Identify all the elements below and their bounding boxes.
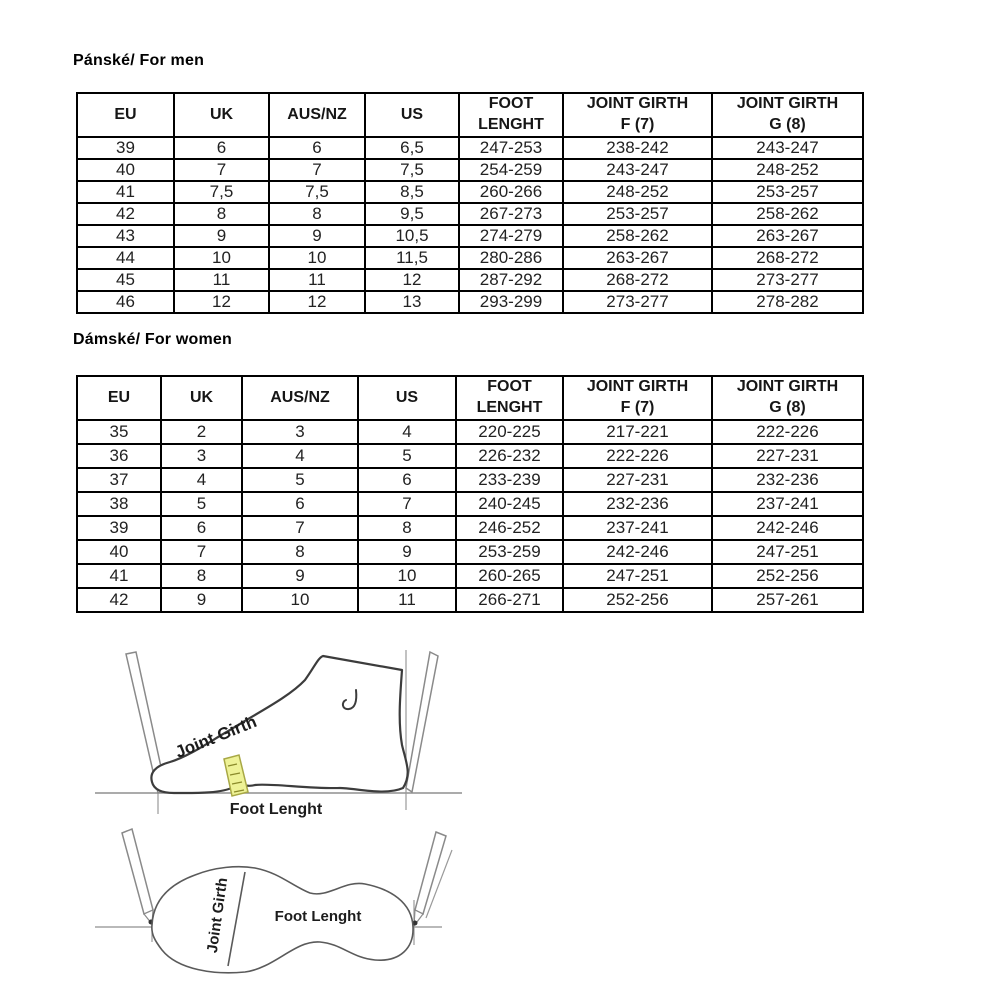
column-header: EU <box>77 376 161 420</box>
table-cell: 222-226 <box>563 444 712 468</box>
table-cell: 253-259 <box>456 540 563 564</box>
table-cell: 266-271 <box>456 588 563 612</box>
table-cell: 9,5 <box>365 203 459 225</box>
table-cell: 2 <box>161 420 242 444</box>
table-cell: 36 <box>77 444 161 468</box>
table-cell: 11 <box>174 269 269 291</box>
table-cell: 247-253 <box>459 137 563 159</box>
column-header: UK <box>161 376 242 420</box>
table-cell: 12 <box>365 269 459 291</box>
men-section-title: Pánské/ For men <box>73 52 204 70</box>
table-cell: 237-241 <box>712 492 863 516</box>
table-row: 44101011,5280-286263-267268-272 <box>77 247 863 269</box>
table-row: 39666,5247-253238-242243-247 <box>77 137 863 159</box>
table-cell: 7 <box>174 159 269 181</box>
table-cell: 237-241 <box>563 516 712 540</box>
table-cell: 8 <box>242 540 358 564</box>
column-header: US <box>358 376 456 420</box>
table-cell: 8 <box>174 203 269 225</box>
table-cell: 7,5 <box>269 181 365 203</box>
men-table-header-row: EUUKAUS/NZUSFOOT LENGHTJOINT GIRTH F (7)… <box>77 93 863 137</box>
column-header: JOINT GIRTH F (7) <box>563 93 712 137</box>
table-cell: 10,5 <box>365 225 459 247</box>
table-row: 37456233-239227-231232-236 <box>77 468 863 492</box>
women-size-table: EUUKAUS/NZUSFOOT LENGHTJOINT GIRTH F (7)… <box>76 375 864 613</box>
table-cell: 42 <box>77 588 161 612</box>
table-row: 42889,5267-273253-257258-262 <box>77 203 863 225</box>
table-cell: 10 <box>174 247 269 269</box>
table-cell: 39 <box>77 516 161 540</box>
table-cell: 37 <box>77 468 161 492</box>
column-header: FOOT LENGHT <box>456 376 563 420</box>
table-cell: 222-226 <box>712 420 863 444</box>
table-row: 39678246-252237-241242-246 <box>77 516 863 540</box>
table-cell: 4 <box>242 444 358 468</box>
table-cell: 6 <box>358 468 456 492</box>
column-header: JOINT GIRTH F (7) <box>563 376 712 420</box>
table-row: 418910260-265247-251252-256 <box>77 564 863 588</box>
table-cell: 227-231 <box>712 444 863 468</box>
table-cell: 9 <box>242 564 358 588</box>
pencil-left-icon <box>122 829 154 925</box>
table-cell: 43 <box>77 225 174 247</box>
foot-sole-view-diagram: Joint Girth Foot Lenght <box>80 822 480 982</box>
table-cell: 35 <box>77 420 161 444</box>
table-cell: 252-256 <box>563 588 712 612</box>
table-cell: 10 <box>242 588 358 612</box>
table-cell: 9 <box>269 225 365 247</box>
table-cell: 8 <box>161 564 242 588</box>
table-cell: 246-252 <box>456 516 563 540</box>
women-table-header-row: EUUKAUS/NZUSFOOT LENGHTJOINT GIRTH F (7)… <box>77 376 863 420</box>
table-cell: 253-257 <box>712 181 863 203</box>
table-cell: 4 <box>161 468 242 492</box>
column-header: AUS/NZ <box>269 93 365 137</box>
table-cell: 248-252 <box>712 159 863 181</box>
table-cell: 12 <box>269 291 365 313</box>
table-row: 38567240-245232-236237-241 <box>77 492 863 516</box>
table-cell: 3 <box>242 420 358 444</box>
column-header: JOINT GIRTH G (8) <box>712 93 863 137</box>
table-cell: 227-231 <box>563 468 712 492</box>
table-cell: 268-272 <box>563 269 712 291</box>
foot-outline <box>151 656 407 793</box>
table-cell: 232-236 <box>563 492 712 516</box>
table-cell: 278-282 <box>712 291 863 313</box>
table-cell: 39 <box>77 137 174 159</box>
table-cell: 6,5 <box>365 137 459 159</box>
table-cell: 41 <box>77 564 161 588</box>
table-cell: 293-299 <box>459 291 563 313</box>
table-row: 45111112287-292268-272273-277 <box>77 269 863 291</box>
table-cell: 267-273 <box>459 203 563 225</box>
table-cell: 13 <box>365 291 459 313</box>
table-cell: 220-225 <box>456 420 563 444</box>
table-cell: 40 <box>77 540 161 564</box>
table-cell: 8 <box>269 203 365 225</box>
table-cell: 6 <box>269 137 365 159</box>
table-cell: 248-252 <box>563 181 712 203</box>
foot-side-view-diagram: Joint Girth Foot Lenght <box>90 642 470 822</box>
table-cell: 12 <box>174 291 269 313</box>
table-cell: 11,5 <box>365 247 459 269</box>
sole-foot-length-label: Foot Lenght <box>275 908 362 925</box>
table-cell: 238-242 <box>563 137 712 159</box>
table-row: 36345226-232222-226227-231 <box>77 444 863 468</box>
men-table-body: 39666,5247-253238-242243-24740777,5254-2… <box>77 137 863 313</box>
column-header: US <box>365 93 459 137</box>
table-cell: 233-239 <box>456 468 563 492</box>
table-cell: 247-251 <box>712 540 863 564</box>
table-cell: 260-265 <box>456 564 563 588</box>
table-cell: 253-257 <box>563 203 712 225</box>
table-cell: 8 <box>358 516 456 540</box>
table-cell: 10 <box>269 247 365 269</box>
table-cell: 226-232 <box>456 444 563 468</box>
table-cell: 7,5 <box>174 181 269 203</box>
table-row: 4291011266-271252-256257-261 <box>77 588 863 612</box>
table-cell: 10 <box>358 564 456 588</box>
table-row: 35234220-225217-221222-226 <box>77 420 863 444</box>
table-cell: 42 <box>77 203 174 225</box>
table-cell: 7 <box>242 516 358 540</box>
table-cell: 260-266 <box>459 181 563 203</box>
table-cell: 45 <box>77 269 174 291</box>
table-cell: 257-261 <box>712 588 863 612</box>
table-cell: 273-277 <box>712 269 863 291</box>
table-cell: 9 <box>161 588 242 612</box>
table-cell: 287-292 <box>459 269 563 291</box>
table-cell: 243-247 <box>563 159 712 181</box>
column-header: AUS/NZ <box>242 376 358 420</box>
table-row: 46121213293-299273-277278-282 <box>77 291 863 313</box>
table-cell: 9 <box>174 225 269 247</box>
table-cell: 254-259 <box>459 159 563 181</box>
table-cell: 232-236 <box>712 468 863 492</box>
table-cell: 5 <box>242 468 358 492</box>
table-cell: 6 <box>242 492 358 516</box>
table-cell: 6 <box>161 516 242 540</box>
table-cell: 280-286 <box>459 247 563 269</box>
pencil-right-icon <box>413 832 453 926</box>
table-cell: 9 <box>358 540 456 564</box>
measuring-stick-right-icon <box>406 652 438 792</box>
table-cell: 7,5 <box>365 159 459 181</box>
size-chart-page: Pánské/ For men EUUKAUS/NZUSFOOT LENGHTJ… <box>0 0 997 997</box>
table-cell: 4 <box>358 420 456 444</box>
table-cell: 3 <box>161 444 242 468</box>
table-cell: 243-247 <box>712 137 863 159</box>
table-cell: 258-262 <box>712 203 863 225</box>
table-row: 439910,5274-279258-262263-267 <box>77 225 863 247</box>
table-cell: 217-221 <box>563 420 712 444</box>
column-header: JOINT GIRTH G (8) <box>712 376 863 420</box>
table-cell: 46 <box>77 291 174 313</box>
table-cell: 263-267 <box>563 247 712 269</box>
women-section-title: Dámské/ For women <box>73 331 232 349</box>
table-cell: 38 <box>77 492 161 516</box>
table-cell: 7 <box>358 492 456 516</box>
column-header: UK <box>174 93 269 137</box>
table-cell: 11 <box>358 588 456 612</box>
table-cell: 5 <box>358 444 456 468</box>
table-cell: 273-277 <box>563 291 712 313</box>
column-header: FOOT LENGHT <box>459 93 563 137</box>
column-header: EU <box>77 93 174 137</box>
table-cell: 242-246 <box>563 540 712 564</box>
table-cell: 7 <box>269 159 365 181</box>
table-cell: 7 <box>161 540 242 564</box>
table-cell: 44 <box>77 247 174 269</box>
table-cell: 6 <box>174 137 269 159</box>
table-cell: 41 <box>77 181 174 203</box>
table-cell: 40 <box>77 159 174 181</box>
table-cell: 8,5 <box>365 181 459 203</box>
table-cell: 11 <box>269 269 365 291</box>
table-cell: 247-251 <box>563 564 712 588</box>
women-table-body: 35234220-225217-221222-22636345226-23222… <box>77 420 863 612</box>
table-cell: 240-245 <box>456 492 563 516</box>
table-row: 417,57,58,5260-266248-252253-257 <box>77 181 863 203</box>
table-cell: 258-262 <box>563 225 712 247</box>
table-cell: 252-256 <box>712 564 863 588</box>
table-cell: 268-272 <box>712 247 863 269</box>
table-cell: 274-279 <box>459 225 563 247</box>
table-cell: 263-267 <box>712 225 863 247</box>
table-row: 40789253-259242-246247-251 <box>77 540 863 564</box>
table-cell: 5 <box>161 492 242 516</box>
table-cell: 242-246 <box>712 516 863 540</box>
men-size-table: EUUKAUS/NZUSFOOT LENGHTJOINT GIRTH F (7)… <box>76 92 864 314</box>
table-row: 40777,5254-259243-247248-252 <box>77 159 863 181</box>
side-foot-length-label: Foot Lenght <box>230 801 323 818</box>
